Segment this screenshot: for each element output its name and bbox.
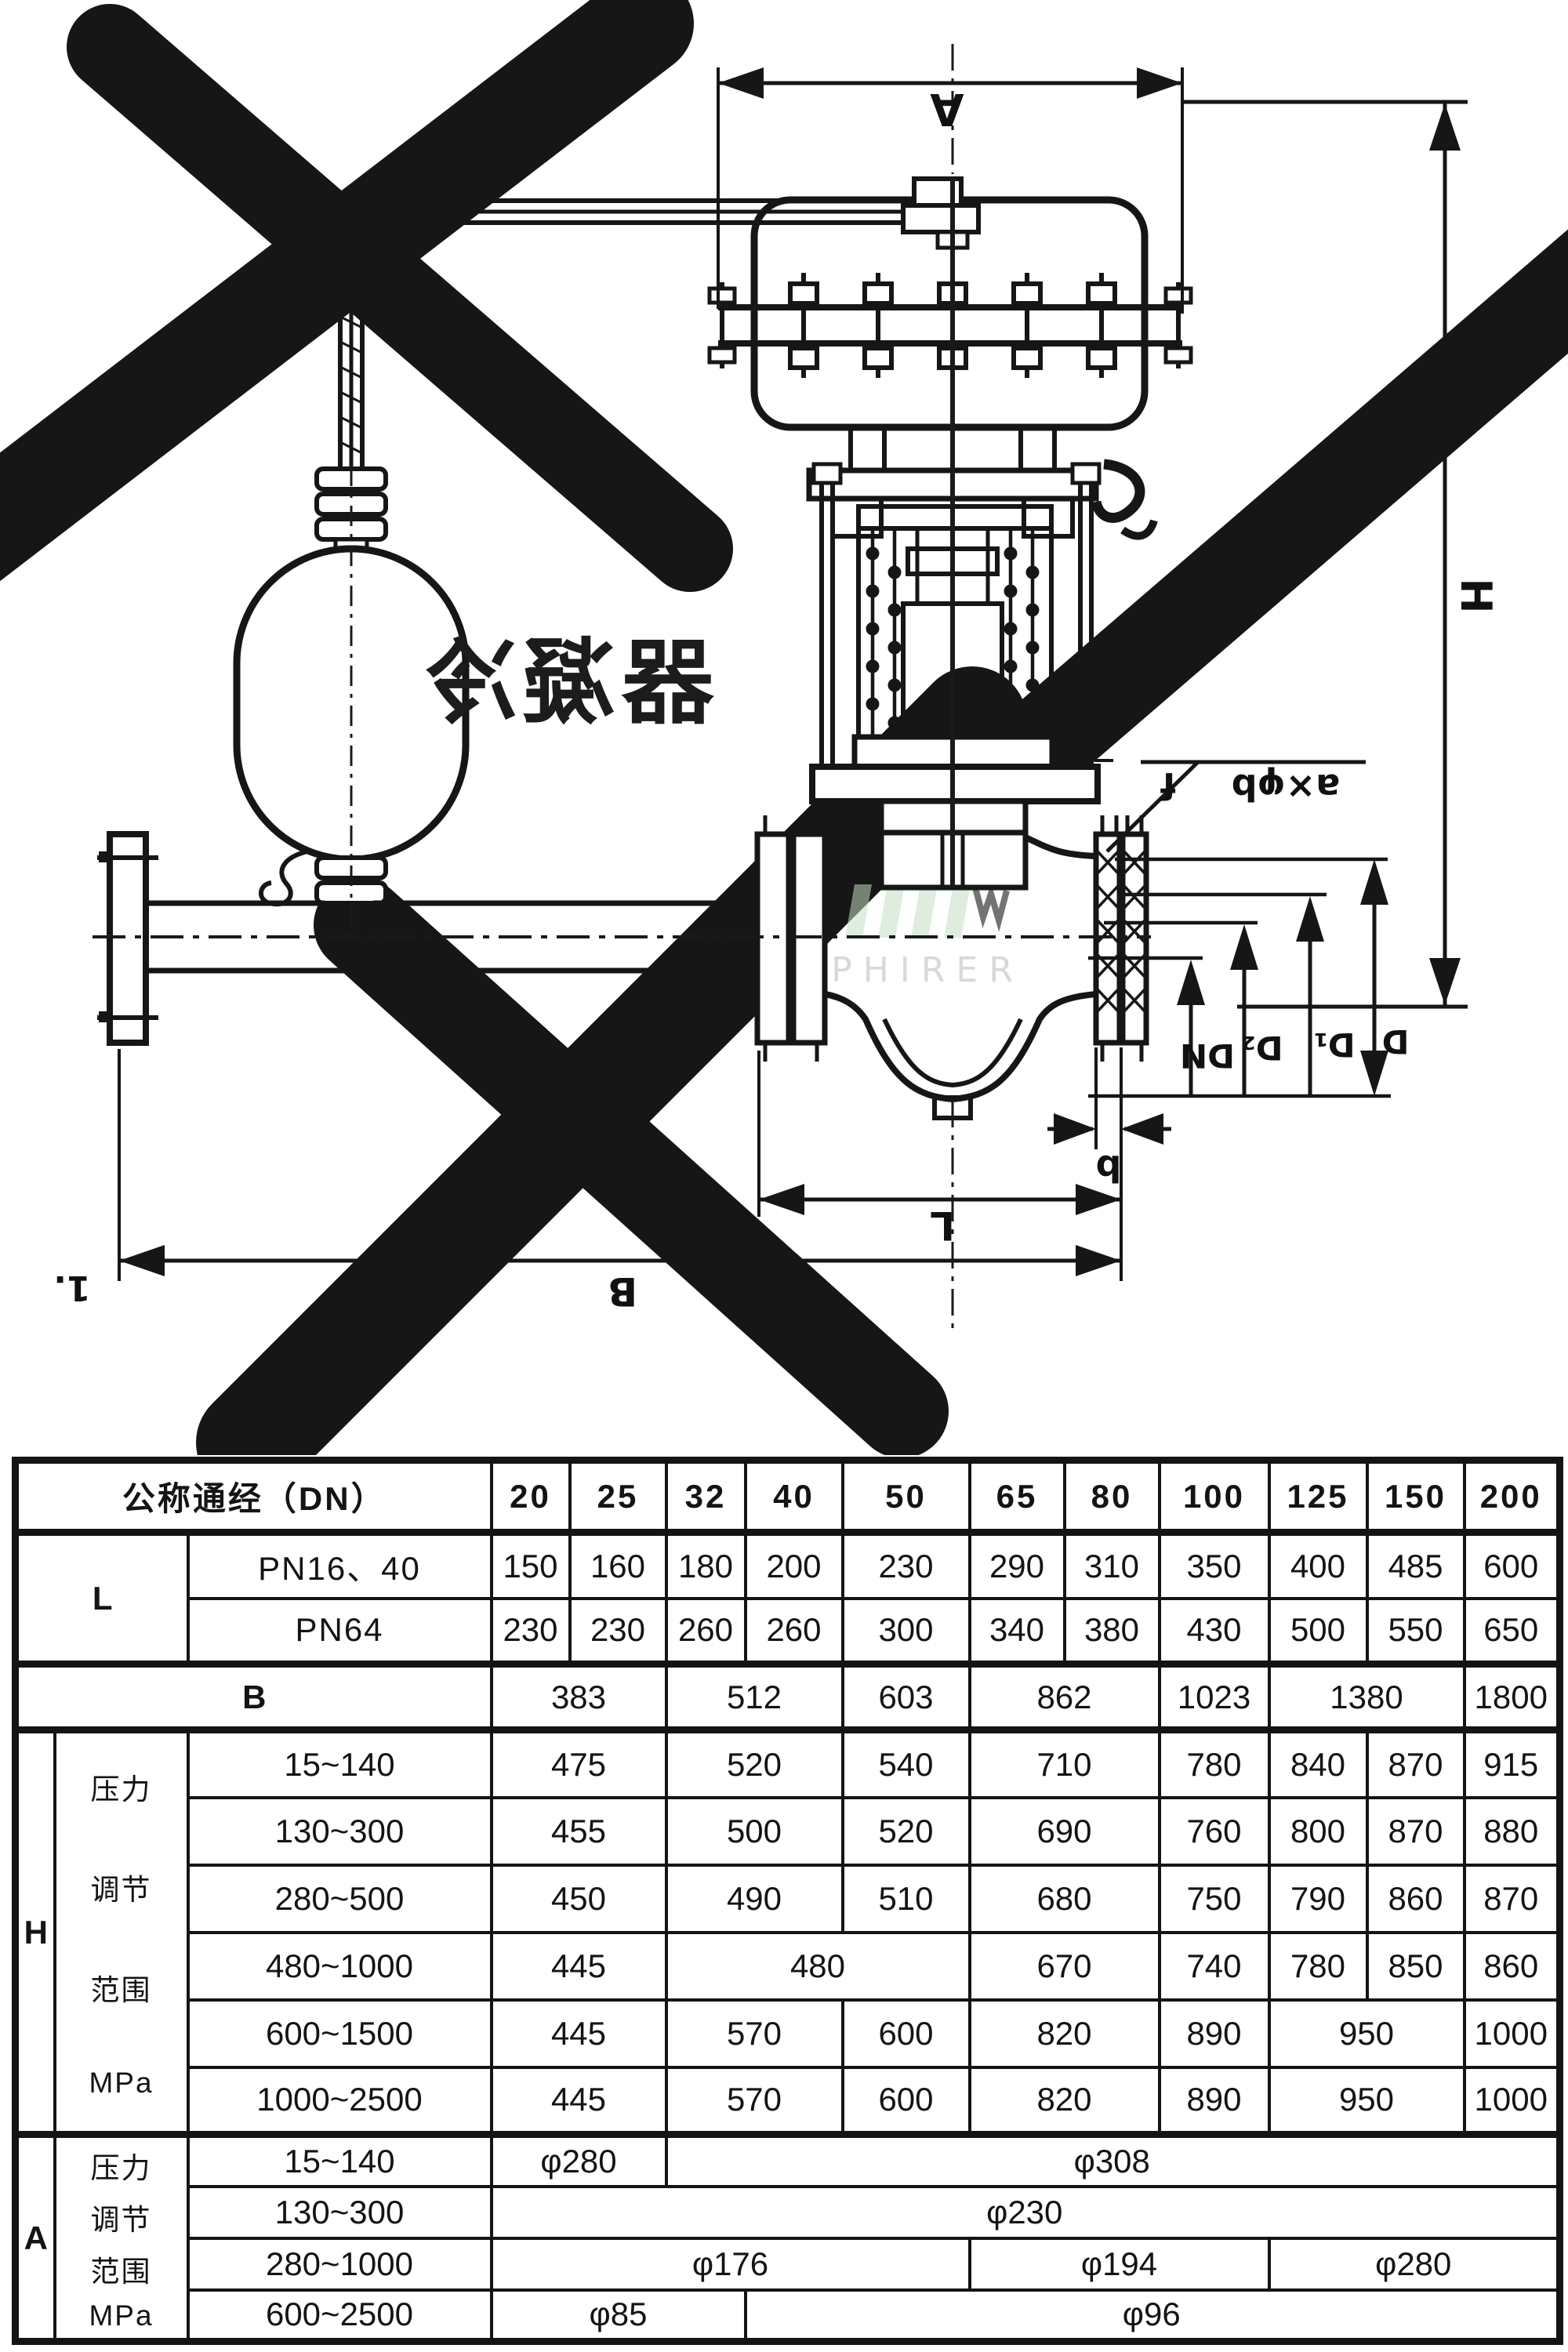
table-cell: 260 bbox=[666, 1599, 746, 1664]
table-cell: 400 bbox=[1269, 1533, 1367, 1599]
table-cell: 603 bbox=[843, 1664, 970, 1730]
dim-axfib-label: a×φb bbox=[1232, 766, 1341, 808]
table-cell: 600~2500 bbox=[188, 2290, 492, 2342]
table-row: PN64230230260260300340380430500550650 bbox=[16, 1599, 1560, 1664]
table-cell: 500 bbox=[1269, 1599, 1367, 1664]
table-row: LPN16、4015016018020023029031035040048560… bbox=[16, 1533, 1560, 1599]
table-row: B383512603862102313801800 bbox=[16, 1664, 1560, 1730]
table-cell: 310 bbox=[1065, 1533, 1160, 1599]
table-cell: 600 bbox=[843, 2067, 970, 2135]
table-cell: 550 bbox=[1367, 1599, 1465, 1664]
corner-mark: 1. bbox=[53, 1268, 90, 1308]
table-cell: 750 bbox=[1160, 1865, 1269, 1933]
table-cell: 510 bbox=[843, 1865, 970, 1933]
dim-d2-label: D₂ bbox=[1241, 1029, 1283, 1067]
table-row: A压力调节范围MPa15~140φ280φ308 bbox=[16, 2135, 1560, 2187]
table-row: 280~1000φ176φ194φ280 bbox=[16, 2238, 1560, 2290]
table-cell: 890 bbox=[1160, 2067, 1269, 2135]
table-cell: 230 bbox=[570, 1599, 666, 1664]
table-cell: 690 bbox=[970, 1798, 1160, 1865]
table-cell: 600 bbox=[843, 2000, 970, 2067]
table-cell: 710 bbox=[970, 1730, 1160, 1798]
table-cell: 1000 bbox=[1465, 2067, 1560, 2135]
table-cell: 820 bbox=[970, 2067, 1160, 2135]
table-row: 公称通经（DN）20253240506580100125150200 bbox=[16, 1461, 1560, 1533]
table-cell: 890 bbox=[1160, 2000, 1269, 2067]
table-cell: 480 bbox=[666, 1933, 970, 2000]
table-cell: 490 bbox=[666, 1865, 843, 1933]
condenser-label: 器凝冷 bbox=[418, 629, 714, 737]
dim-l-label: L bbox=[930, 1203, 955, 1248]
row-label-A: A bbox=[16, 2135, 55, 2342]
table-cell: 130~300 bbox=[188, 1798, 492, 1865]
table-cell: φ176 bbox=[492, 2238, 970, 2290]
table-cell: 1380 bbox=[1269, 1664, 1465, 1730]
table-cell: 100 bbox=[1160, 1461, 1269, 1533]
table-cell: 915 bbox=[1465, 1730, 1560, 1798]
table-cell: 485 bbox=[1367, 1533, 1465, 1599]
table-cell: 350 bbox=[1160, 1533, 1269, 1599]
table-cell: 1800 bbox=[1465, 1664, 1560, 1730]
table-cell: 600 bbox=[1465, 1533, 1560, 1599]
table-cell: φ96 bbox=[746, 2290, 1560, 2342]
dim-dn-label: DN bbox=[1180, 1036, 1235, 1075]
table-row: 600~15004455706008208909501000 bbox=[16, 2000, 1560, 2067]
table-cell: 450 bbox=[492, 1865, 666, 1933]
row-label-H: H bbox=[16, 1730, 55, 2135]
dim-h-label: H bbox=[1451, 578, 1501, 613]
table-cell: 260 bbox=[746, 1599, 843, 1664]
spec-table: 公称通经（DN）20253240506580100125150200LPN16、… bbox=[12, 1457, 1563, 2345]
table-cell: 160 bbox=[570, 1533, 666, 1599]
table-cell: 380 bbox=[1065, 1599, 1160, 1664]
table-cell: 570 bbox=[666, 2000, 843, 2067]
watermark-logo-text: PHIRER bbox=[831, 950, 1024, 990]
valve-technical-drawing: PHIRER bbox=[0, 0, 1568, 1455]
table-cell: 50 bbox=[843, 1461, 970, 1533]
table-cell: 15~140 bbox=[188, 2135, 492, 2187]
table-cell: φ280 bbox=[1269, 2238, 1560, 2290]
table-cell: 800 bbox=[1269, 1798, 1367, 1865]
table-cell: 130~300 bbox=[188, 2187, 492, 2238]
pressure-range-label: 压力调节范围MPa bbox=[55, 2135, 188, 2342]
table-cell: 740 bbox=[1160, 1933, 1269, 2000]
table-row: 480~1000445480670740780850860 bbox=[16, 1933, 1560, 2000]
row-label-pn64: PN64 bbox=[188, 1599, 492, 1664]
row-label-pn16-40: PN16、40 bbox=[188, 1533, 492, 1599]
table-cell: 650 bbox=[1465, 1599, 1560, 1664]
pressure-range-label: 压力调节范围MPa bbox=[55, 1730, 188, 2135]
table-cell: 1000~2500 bbox=[188, 2067, 492, 2135]
table-cell: 455 bbox=[492, 1798, 666, 1865]
table-cell: 230 bbox=[843, 1533, 970, 1599]
table-cell: φ194 bbox=[970, 2238, 1269, 2290]
table-cell: 500 bbox=[666, 1798, 843, 1865]
table-cell: 860 bbox=[1367, 1865, 1465, 1933]
table-cell: 475 bbox=[492, 1730, 666, 1798]
table-cell: 570 bbox=[666, 2067, 843, 2135]
table-cell: 540 bbox=[843, 1730, 970, 1798]
table-cell: 180 bbox=[666, 1533, 746, 1599]
table-cell: 15~140 bbox=[188, 1730, 492, 1798]
table-cell: 445 bbox=[492, 2000, 666, 2067]
dim-d-label: D bbox=[1382, 1022, 1410, 1061]
dim-big-b-label: B bbox=[608, 1269, 637, 1314]
table-cell: 780 bbox=[1269, 1933, 1367, 2000]
table-cell: 430 bbox=[1160, 1599, 1269, 1664]
table-cell: 340 bbox=[970, 1599, 1065, 1664]
table-cell: 65 bbox=[970, 1461, 1065, 1533]
dim-a-label: A bbox=[930, 83, 964, 134]
table-cell: 280~1000 bbox=[188, 2238, 492, 2290]
table-cell: 200 bbox=[1465, 1461, 1560, 1533]
col-header-dn: 公称通经（DN） bbox=[16, 1461, 492, 1533]
table-cell: 150 bbox=[492, 1533, 570, 1599]
table-cell: φ280 bbox=[492, 2135, 666, 2187]
dim-d1-label: D₁ bbox=[1313, 1025, 1355, 1064]
table-cell: 862 bbox=[970, 1664, 1160, 1730]
table-cell: 1000 bbox=[1465, 2000, 1560, 2067]
table-cell: 150 bbox=[1367, 1461, 1465, 1533]
table-cell: 870 bbox=[1465, 1865, 1560, 1933]
row-label-L: L bbox=[16, 1533, 188, 1664]
table-cell: 680 bbox=[970, 1865, 1160, 1933]
table-cell: 520 bbox=[666, 1730, 843, 1798]
table-cell: 20 bbox=[492, 1461, 570, 1533]
table-cell: 300 bbox=[843, 1599, 970, 1664]
table-cell: 670 bbox=[970, 1933, 1160, 2000]
row-label-B: B bbox=[16, 1664, 492, 1730]
table-cell: 820 bbox=[970, 2000, 1160, 2067]
table-cell: 790 bbox=[1269, 1865, 1367, 1933]
table-cell: 80 bbox=[1065, 1461, 1160, 1533]
table-row: H压力调节范围MPa15~140475520540710780840870915 bbox=[16, 1730, 1560, 1798]
table-cell: 290 bbox=[970, 1533, 1065, 1599]
table-cell: 780 bbox=[1160, 1730, 1269, 1798]
table-cell: 870 bbox=[1367, 1798, 1465, 1865]
table-cell: 280~500 bbox=[188, 1865, 492, 1933]
table-cell: 880 bbox=[1465, 1798, 1560, 1865]
page: PHIRER bbox=[0, 0, 1568, 2352]
watermark-red-fragment bbox=[1096, 464, 1154, 536]
table-cell: 480~1000 bbox=[188, 1933, 492, 2000]
table-cell: 950 bbox=[1269, 2000, 1465, 2067]
dim-f-label: f bbox=[1160, 764, 1176, 807]
table-cell: 445 bbox=[492, 1933, 666, 2000]
table-cell: 840 bbox=[1269, 1730, 1367, 1798]
table-row: 600~2500φ85φ96 bbox=[16, 2290, 1560, 2342]
table-cell: 850 bbox=[1367, 1933, 1465, 2000]
dim-b: b bbox=[1047, 1047, 1171, 1217]
table-cell: 125 bbox=[1269, 1461, 1367, 1533]
table-cell: 445 bbox=[492, 2067, 666, 2135]
table-cell: 760 bbox=[1160, 1798, 1269, 1865]
table-row: 280~500450490510680750790860870 bbox=[16, 1865, 1560, 1933]
table-cell: 520 bbox=[843, 1798, 970, 1865]
table-cell: φ85 bbox=[492, 2290, 746, 2342]
table-cell: 600~1500 bbox=[188, 2000, 492, 2067]
dim-b-label: b bbox=[1096, 1147, 1122, 1189]
table-cell: 512 bbox=[666, 1664, 843, 1730]
table-row: 1000~25004455706008208909501000 bbox=[16, 2067, 1560, 2135]
table-cell: 1023 bbox=[1160, 1664, 1269, 1730]
table-row: 130~300455500520690760800870880 bbox=[16, 1798, 1560, 1865]
table-cell: 383 bbox=[492, 1664, 666, 1730]
table-cell: 40 bbox=[746, 1461, 843, 1533]
table-cell: φ230 bbox=[492, 2187, 1560, 2238]
table-cell: 870 bbox=[1367, 1730, 1465, 1798]
pipe-fitting bbox=[903, 179, 978, 248]
table-cell: φ308 bbox=[666, 2135, 1560, 2187]
table-cell: 860 bbox=[1465, 1933, 1560, 2000]
table-row: 130~300φ230 bbox=[16, 2187, 1560, 2238]
table-cell: 200 bbox=[746, 1533, 843, 1599]
table-cell: 32 bbox=[666, 1461, 746, 1533]
table-cell: 25 bbox=[570, 1461, 666, 1533]
table-cell: 230 bbox=[492, 1599, 570, 1664]
dim-L: L bbox=[759, 1051, 1121, 1248]
table-cell: 950 bbox=[1269, 2067, 1465, 2135]
